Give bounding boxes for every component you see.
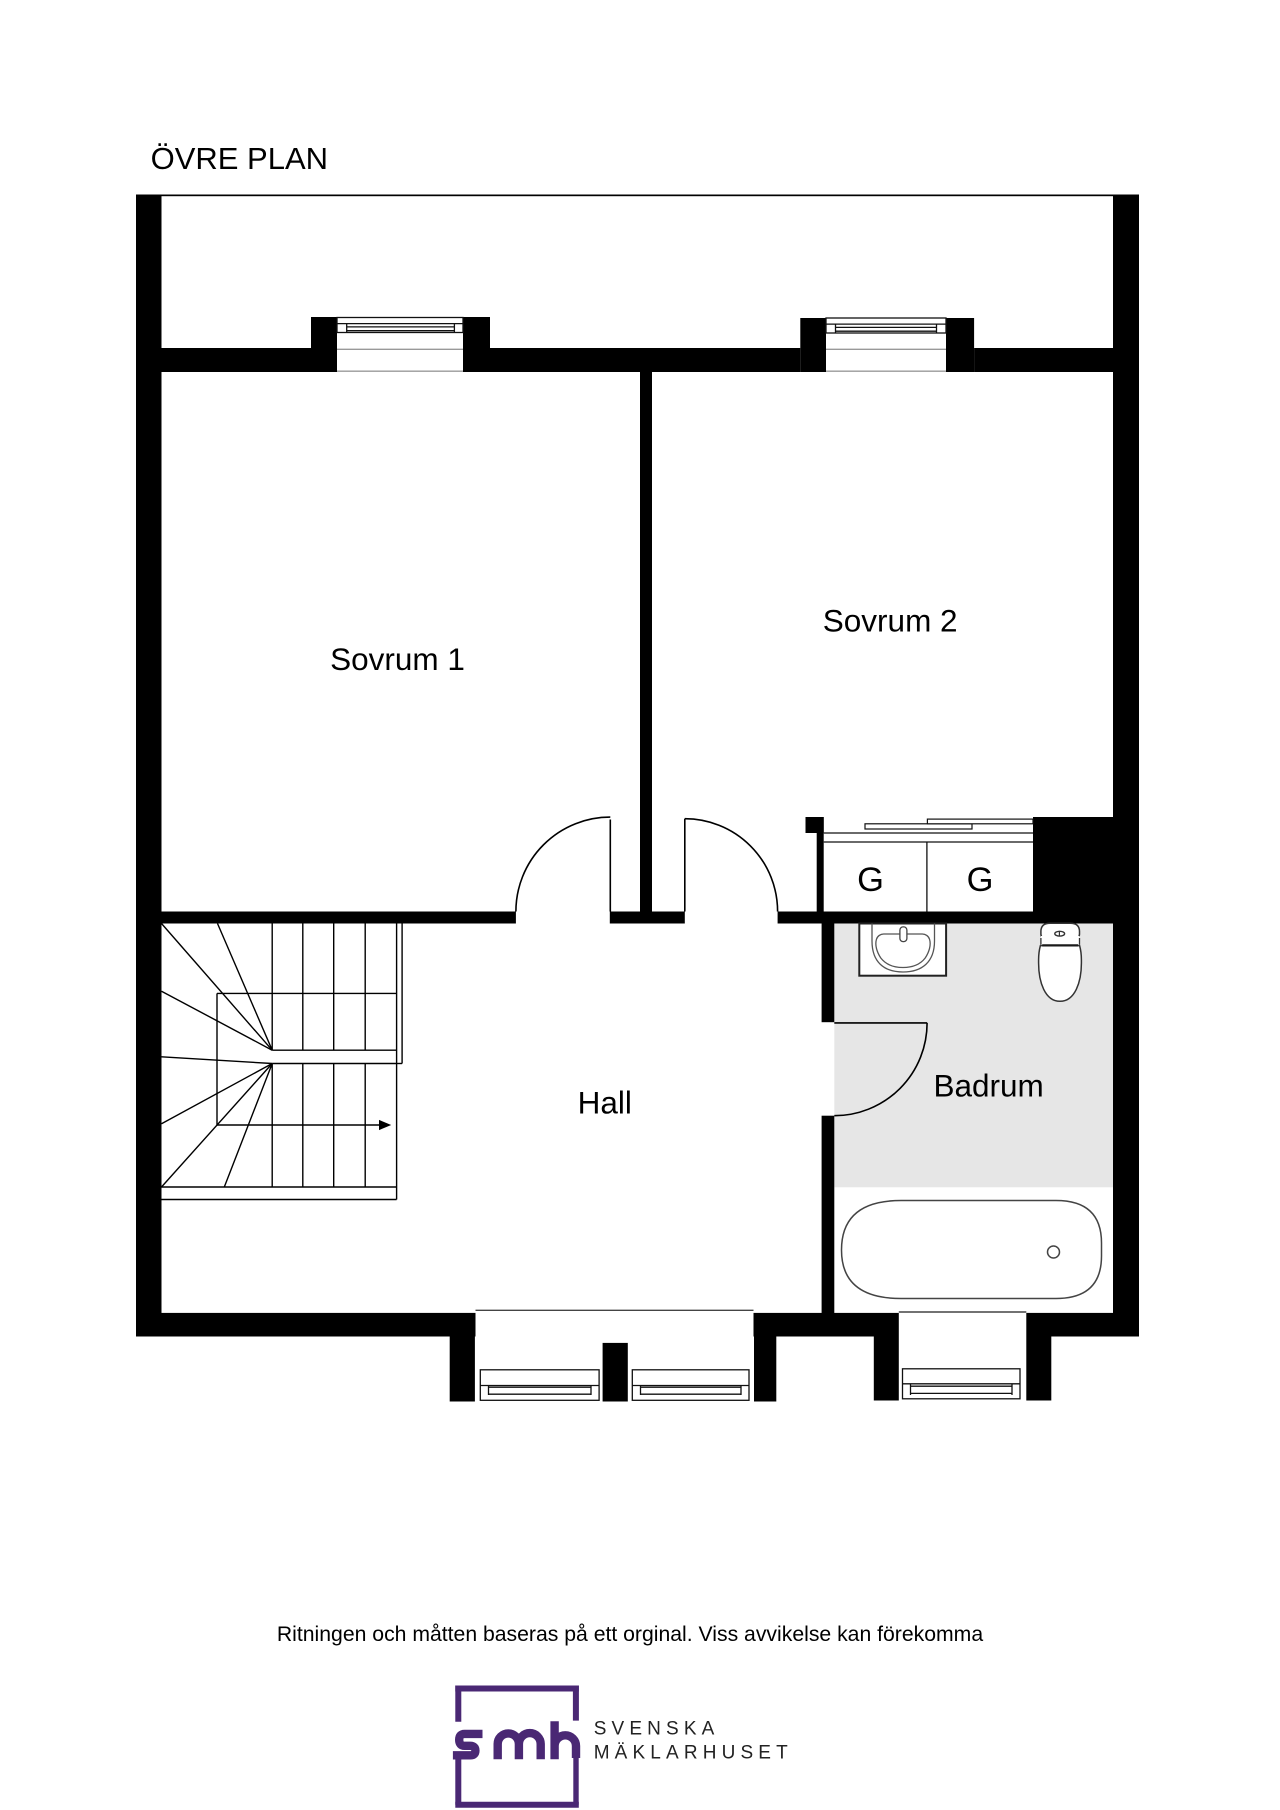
svg-text:Sovrum 2: Sovrum 2 [823, 602, 958, 638]
svg-text:Hall: Hall [578, 1085, 632, 1121]
svg-text:MÄKLARHUSET: MÄKLARHUSET [594, 1743, 793, 1764]
svg-text:G: G [857, 861, 884, 899]
svg-text:Sovrum 1: Sovrum 1 [330, 641, 465, 677]
svg-text:ÖVRE PLAN: ÖVRE PLAN [151, 141, 328, 176]
svg-text:Badrum: Badrum [933, 1068, 1043, 1104]
svg-text:Ritningen och måtten baseras p: Ritningen och måtten baseras på ett orgi… [277, 1623, 983, 1646]
svg-text:G: G [967, 861, 994, 899]
svg-text:SVENSKA: SVENSKA [594, 1718, 720, 1739]
